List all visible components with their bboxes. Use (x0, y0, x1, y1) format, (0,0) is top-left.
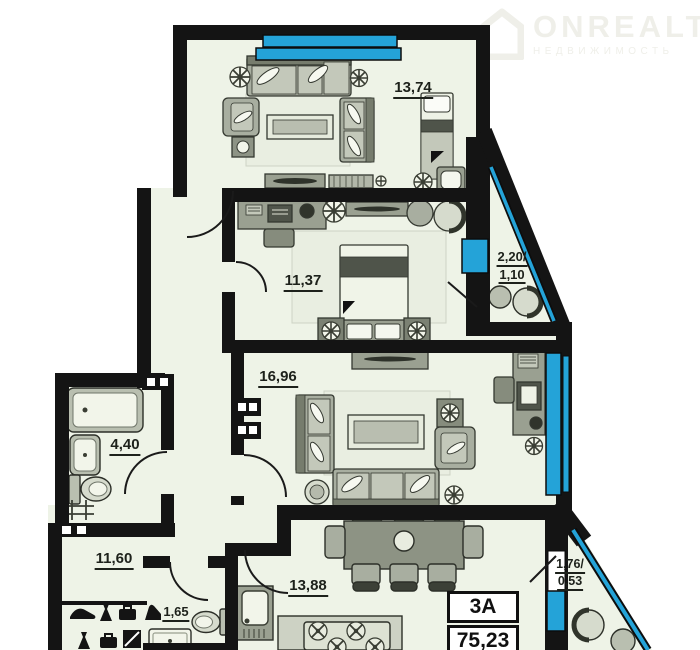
window-top-outer (263, 35, 397, 47)
room-area-label-wc: 1,65 (162, 605, 189, 622)
floor-plan: ONREALT НЕДВИЖИМОСТЬ (0, 0, 700, 650)
window-living-right (546, 353, 561, 495)
room-area-label-bedroom: 11,37 (284, 273, 323, 292)
room-area-label-living-top: 13,74 (393, 80, 433, 99)
room-area-label-living-main: 16,96 (258, 369, 298, 388)
window-bedroom-balcony (462, 239, 488, 273)
room-area-label-bathroom: 4,40 (109, 437, 140, 456)
window-top-inner (256, 48, 401, 60)
room-area-label-hallway: 11,60 (95, 551, 134, 570)
mirror-icon (123, 630, 141, 648)
window-kitchen-balcony (547, 591, 565, 631)
room-area-label-balcony-top: 2,20/ 1,10 (497, 250, 528, 284)
unit-number: 3А (447, 591, 519, 623)
unit-total-area: 75,23 (447, 625, 519, 650)
room-area-label-balcony-bottom: 1,76/ 0,53 (555, 558, 585, 591)
room-area-label-kitchen: 13,88 (288, 578, 328, 597)
unit-info-box: 3А 75,23 (447, 591, 519, 650)
